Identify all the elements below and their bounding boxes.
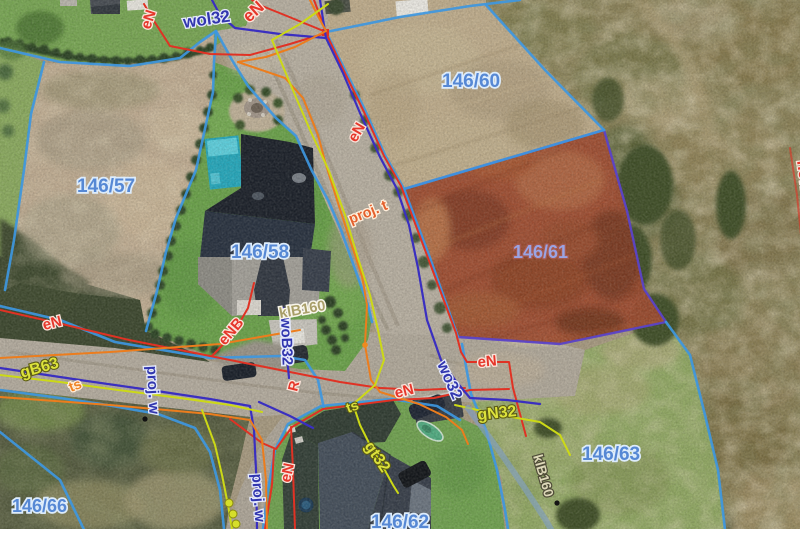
svg-text:woB32: woB32 xyxy=(277,316,296,366)
svg-text:eN: eN xyxy=(477,352,498,371)
svg-text:146/61: 146/61 xyxy=(513,242,568,262)
svg-text:146/66: 146/66 xyxy=(12,496,67,516)
svg-text:146/63: 146/63 xyxy=(582,444,640,465)
svg-text:proj. w: proj. w xyxy=(248,473,268,523)
svg-text:146/58: 146/58 xyxy=(231,242,289,263)
svg-text:146/57: 146/57 xyxy=(77,176,135,197)
svg-text:146/60: 146/60 xyxy=(442,71,500,92)
svg-text:proj. w: proj. w xyxy=(143,365,163,414)
